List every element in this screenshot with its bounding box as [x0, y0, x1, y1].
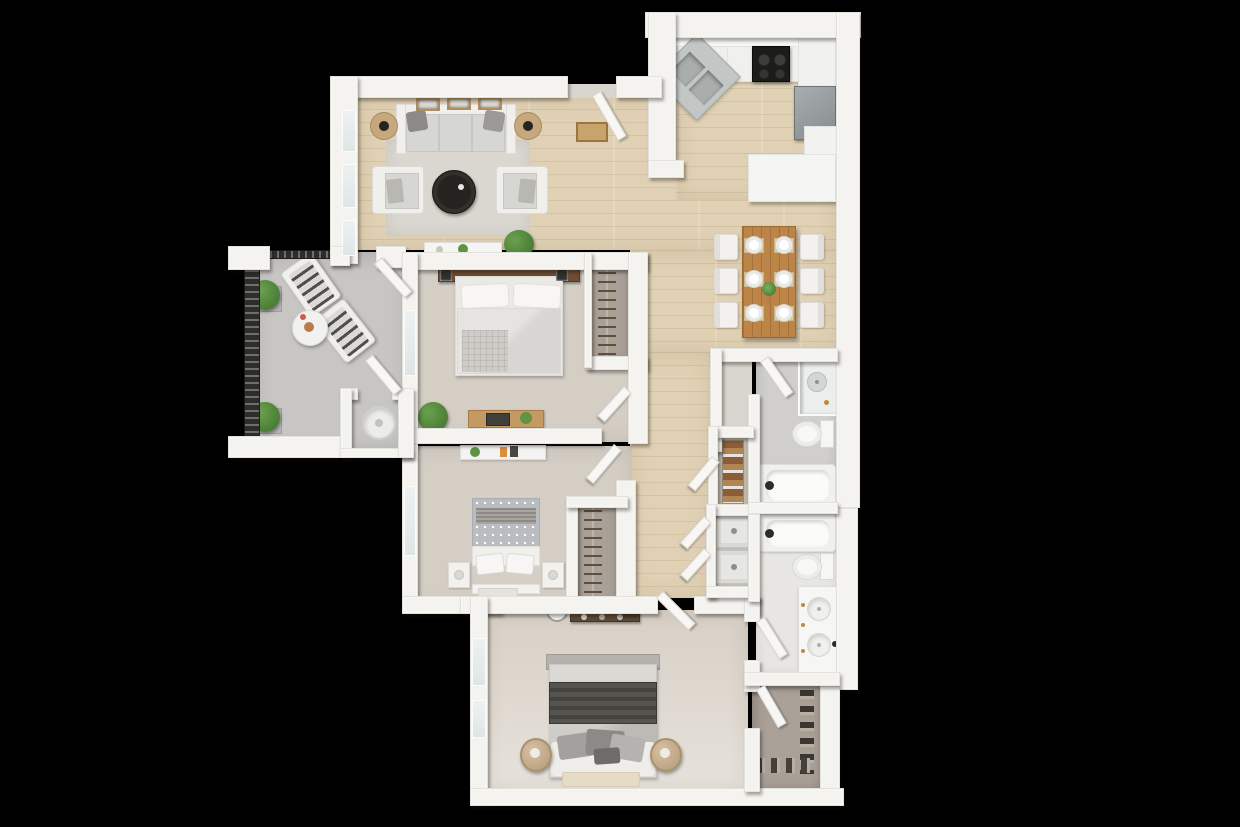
living-window [342, 220, 356, 256]
sink-drain [817, 643, 821, 647]
centerpiece-plant-icon [762, 282, 776, 296]
bed-pillow [505, 553, 535, 575]
shower-drain [815, 380, 819, 384]
wall-kitchen-left-step [648, 160, 684, 178]
bed-pillow [593, 747, 620, 765]
bed-pillow [475, 553, 505, 576]
shelf-plant-icon [470, 447, 480, 457]
plate [776, 305, 792, 321]
toilet-bowl [792, 421, 822, 447]
table-lamp-icon [523, 121, 533, 131]
dining-chair [800, 268, 824, 294]
wall-art-frame [447, 97, 471, 110]
wall-right-upper [836, 12, 860, 508]
living-window [342, 164, 356, 208]
heater-cap [375, 419, 383, 427]
toilet-tank [820, 553, 834, 580]
wall-closet1-right [628, 252, 648, 444]
wall-master-bottom [470, 788, 844, 806]
wall-balcony-cap-top [228, 246, 270, 270]
dining-chair [714, 268, 738, 294]
sofa-cushion [439, 114, 472, 152]
wall-bedroom1-bottom [402, 428, 602, 444]
double-sink-vanity [798, 586, 838, 674]
wall-master-top-left [460, 596, 658, 614]
coffee-table-decor [458, 184, 464, 190]
nightstand-decor [660, 748, 670, 758]
apartment-floor-plan [0, 0, 1240, 827]
shelf-book [500, 447, 507, 457]
dining-chair [800, 302, 824, 328]
master-window [472, 700, 486, 738]
armchair-pillow [386, 178, 404, 204]
sink-drain [817, 607, 821, 611]
bedroom2-bed [472, 498, 540, 594]
wall-storage-right [398, 388, 414, 458]
bedroom1-bed [438, 264, 580, 378]
wall-art-frame [478, 97, 502, 110]
bed-stripe-band [476, 508, 536, 524]
toilet-tank [820, 420, 834, 448]
wall-closet1-jamb [584, 252, 592, 368]
bed-pillow [512, 283, 561, 309]
throw-pillow [483, 110, 506, 133]
bathtub-basin [766, 470, 830, 501]
wall-bath-divider [748, 502, 838, 514]
dining-chair [800, 234, 824, 260]
wall-bedroom1-top [402, 252, 648, 270]
shelf-book [510, 446, 518, 457]
dryer-knob [731, 564, 737, 570]
wall-ensuite-c [744, 728, 760, 792]
living-window [342, 110, 356, 152]
bathtub [758, 514, 836, 552]
wall-bath1-top [710, 348, 838, 362]
plate [776, 271, 792, 287]
wall-right-lower [836, 508, 858, 690]
peninsula-counter [748, 154, 836, 202]
nightstand-speaker-icon [454, 570, 464, 580]
plate [746, 271, 762, 287]
bedroom2-window [404, 486, 416, 556]
bed-duvet-polka [472, 498, 540, 550]
wall-closet-right [820, 686, 840, 802]
wall-closet2-jamb [566, 496, 578, 608]
entry-doormat [576, 122, 608, 142]
toilet [792, 552, 836, 582]
shower-valve [824, 400, 829, 405]
armchair-left [372, 166, 424, 214]
corner-shower [798, 354, 838, 416]
table-lamp-icon [379, 121, 389, 131]
nightstand-speaker-icon [548, 570, 558, 580]
bed-dark-throw [549, 682, 657, 724]
sofa [396, 104, 516, 154]
wall-art-frame [416, 98, 440, 111]
vase-flowers-icon [300, 314, 306, 320]
wall-closet2-top [566, 496, 628, 508]
shoe-row-bottom [756, 758, 814, 773]
closet-hangers [598, 272, 616, 356]
vanity-knob [801, 649, 805, 653]
washer [716, 514, 752, 548]
toilet-bowl [792, 554, 822, 580]
balcony-railing-left [244, 248, 260, 454]
tub-faucet-icon [765, 481, 774, 490]
console-decor [617, 614, 623, 620]
console-decor [599, 614, 605, 620]
armchair-right [496, 166, 548, 214]
table-vase-icon [304, 322, 314, 332]
centerpiece-vase [766, 296, 772, 302]
wall-bath2-left [748, 514, 760, 602]
dining-chair [714, 234, 738, 260]
plate [776, 237, 792, 253]
coffee-table [432, 170, 476, 214]
dryer [716, 550, 752, 584]
plate [746, 305, 762, 321]
bathtub-basin [766, 520, 830, 547]
laptop-icon [486, 413, 510, 426]
bathtub [758, 464, 836, 506]
plate [746, 237, 762, 253]
wall-balcony-bottom [228, 436, 346, 458]
dining-area-floor [630, 250, 838, 352]
range-stove [752, 46, 790, 82]
vanity-knob [801, 603, 805, 607]
tub-faucet-icon [765, 529, 774, 538]
toilet [792, 418, 836, 450]
bedroom1-window [404, 310, 416, 376]
washer-knob [731, 528, 737, 534]
closet-hangers [584, 510, 602, 594]
wall-living-top-left [330, 76, 568, 98]
console-decor [581, 614, 587, 620]
kitchen-counter-right [798, 36, 836, 88]
nightstand-decor [530, 748, 540, 758]
wall-kitchen-top [645, 12, 861, 38]
wall-bath1-left [748, 394, 760, 508]
master-window [472, 638, 486, 686]
master-bed [546, 654, 660, 778]
linen-towel-stack [722, 440, 744, 504]
wall-living-top-right [616, 76, 662, 98]
bed-knit-throw [462, 330, 508, 372]
balcony-railing-top [262, 250, 334, 259]
wall-walkin-top [744, 672, 840, 686]
dining-chair [714, 302, 738, 328]
armchair-pillow [518, 178, 536, 204]
vanity-knob [801, 623, 805, 627]
desk-plant-icon [520, 412, 532, 424]
bedside-rug [562, 772, 640, 787]
throw-pillow [406, 110, 429, 133]
bed-pillow [460, 283, 509, 309]
